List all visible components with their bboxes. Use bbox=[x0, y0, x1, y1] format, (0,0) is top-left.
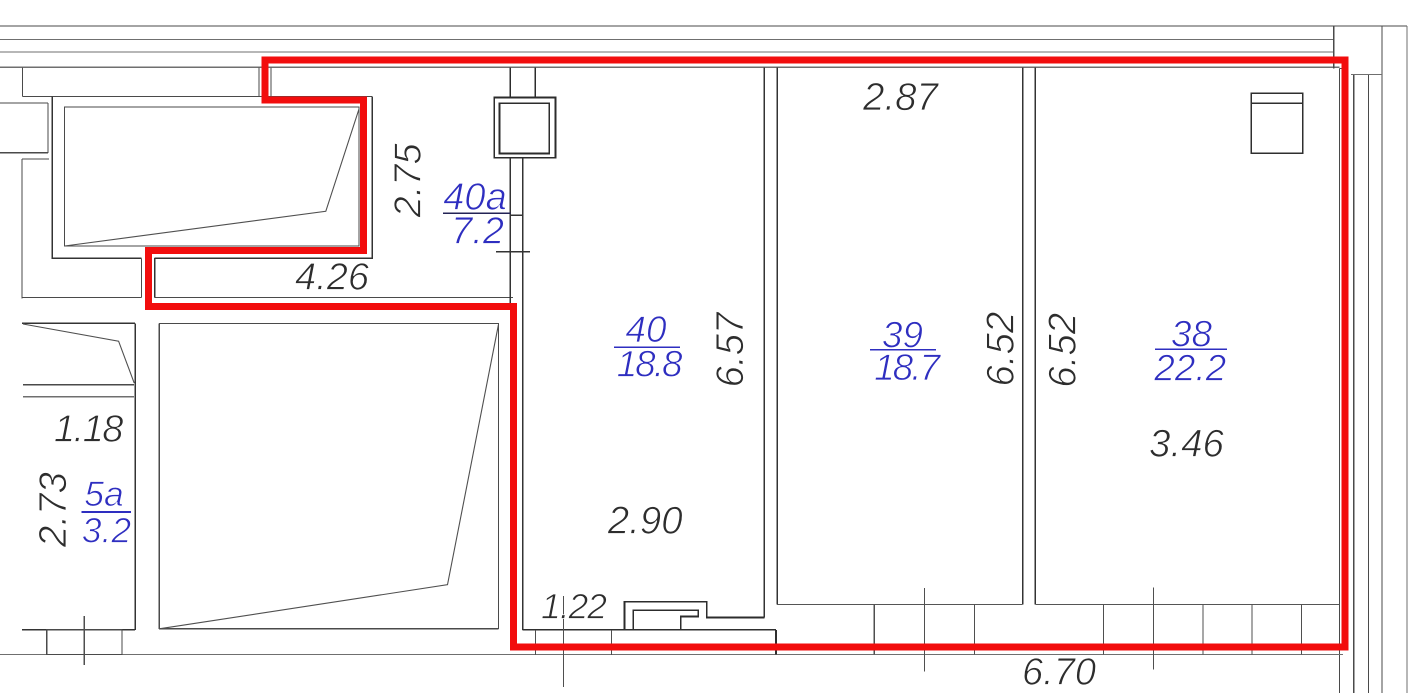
svg-text:7.2: 7.2 bbox=[451, 211, 504, 253]
svg-text:2.75: 2.75 bbox=[388, 143, 430, 219]
svg-text:1.22: 1.22 bbox=[541, 587, 607, 627]
svg-text:2.73: 2.73 bbox=[32, 472, 75, 549]
svg-text:22.2: 22.2 bbox=[1153, 348, 1226, 389]
svg-text:4.26: 4.26 bbox=[295, 257, 370, 299]
svg-text:3.46: 3.46 bbox=[1149, 423, 1225, 466]
svg-text:2.87: 2.87 bbox=[862, 76, 940, 119]
svg-text:5a: 5a bbox=[84, 474, 124, 514]
svg-text:3.2: 3.2 bbox=[82, 511, 132, 551]
svg-text:6.52: 6.52 bbox=[980, 312, 1023, 387]
svg-text:6.52: 6.52 bbox=[1042, 313, 1085, 388]
svg-text:1.18: 1.18 bbox=[54, 409, 123, 451]
svg-text:18.8: 18.8 bbox=[617, 344, 683, 385]
svg-text:18.7: 18.7 bbox=[874, 347, 941, 388]
svg-text:2.90: 2.90 bbox=[607, 500, 684, 543]
svg-text:6.57: 6.57 bbox=[709, 311, 752, 388]
svg-text:6.70: 6.70 bbox=[1022, 652, 1096, 693]
